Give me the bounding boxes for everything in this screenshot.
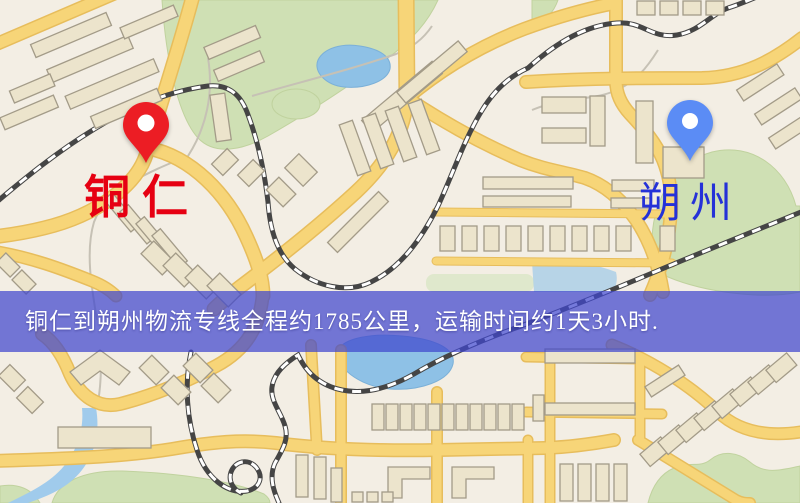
map-image: 铜仁 朔州 铜仁到朔州物流专线全程约1785公里，运输时间约1天3小时. <box>0 0 800 503</box>
route-info-text: 铜仁到朔州物流专线全程约1785公里，运输时间约1天3小时. <box>0 291 800 352</box>
map-canvas <box>0 0 800 503</box>
destination-city-label: 朔州 <box>639 182 741 224</box>
origin-pin-hole <box>138 115 155 132</box>
destination-pin-icon[interactable] <box>662 99 718 163</box>
destination-pin-body <box>667 100 713 161</box>
origin-pin-body <box>123 102 169 163</box>
route-info-banner: 铜仁到朔州物流专线全程约1785公里，运输时间约1天3小时. <box>0 291 800 352</box>
origin-city-label: 铜仁 <box>84 175 200 221</box>
origin-pin-icon[interactable] <box>118 101 174 165</box>
destination-pin-hole <box>682 113 698 129</box>
